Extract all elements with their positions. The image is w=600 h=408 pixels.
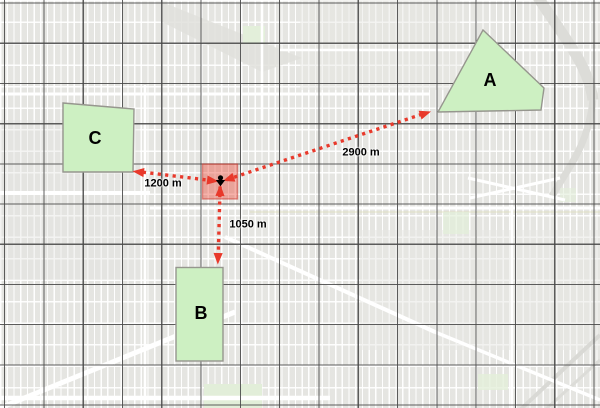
arrowhead-icon xyxy=(213,253,223,265)
zone-label-c: C xyxy=(89,129,102,147)
map-canvas[interactable]: A B C 2900 m 1200 m 1050 m xyxy=(0,0,600,408)
distance-label-c: 1200 m xyxy=(144,179,181,190)
distance-label-a: 2900 m xyxy=(342,148,379,159)
zone-label-b: B xyxy=(195,304,208,322)
annotations-layer xyxy=(0,0,600,408)
measurement-arrow-a[interactable] xyxy=(222,107,433,185)
distance-label-b: 1050 m xyxy=(229,220,266,231)
arrowhead-icon xyxy=(132,167,145,178)
zone-label-a: A xyxy=(484,71,497,89)
arrowhead-icon xyxy=(419,107,433,119)
